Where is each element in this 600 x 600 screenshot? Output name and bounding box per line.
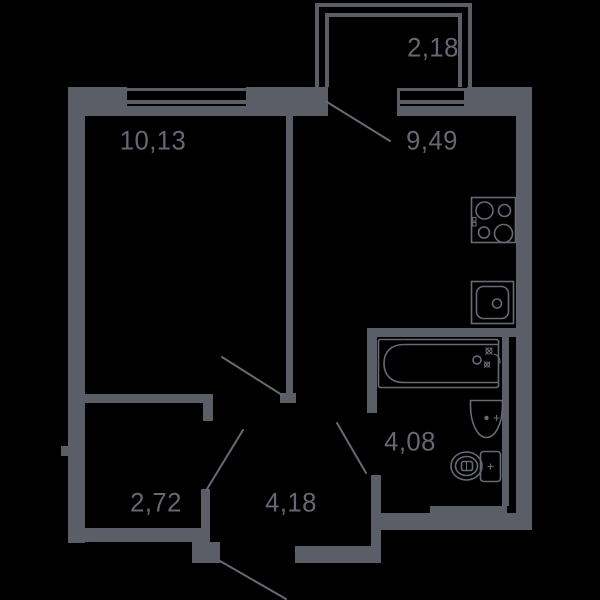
area-label-balcony: 2,18: [407, 33, 459, 64]
area-label-storage: 2,72: [130, 488, 182, 519]
area-label-hallway: 4,18: [265, 488, 317, 519]
washbasin-icon: [471, 401, 503, 438]
area-label-living-room: 10,13: [120, 126, 187, 157]
door-swing-bathroom-icon: [337, 423, 366, 473]
floor-plan: 2,18 10,13 9,49 4,08 2,72 4,18: [0, 0, 600, 600]
door-swing-living-room-icon: [222, 357, 282, 395]
stove-icon: [472, 198, 516, 243]
bath-faucet-icon: [484, 348, 500, 368]
area-label-bathroom: 4,08: [384, 427, 436, 458]
kitchen-sink-icon: [472, 282, 514, 324]
door-swing-storage-icon: [207, 430, 243, 489]
door-swing-entry-icon: [220, 561, 286, 599]
toilet-icon: [451, 452, 501, 482]
area-label-kitchen: 9,49: [406, 126, 458, 157]
bathtub-icon: [379, 340, 501, 388]
door-swing-balcony-icon: [327, 102, 390, 141]
